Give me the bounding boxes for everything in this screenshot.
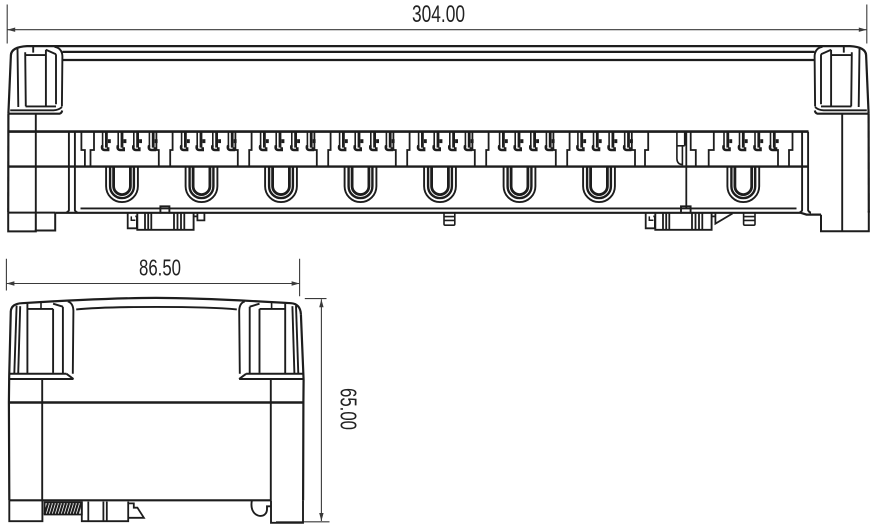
svg-text:65.00: 65.00: [336, 388, 362, 430]
svg-text:86.50: 86.50: [139, 255, 181, 281]
svg-text:304.00: 304.00: [412, 1, 465, 28]
